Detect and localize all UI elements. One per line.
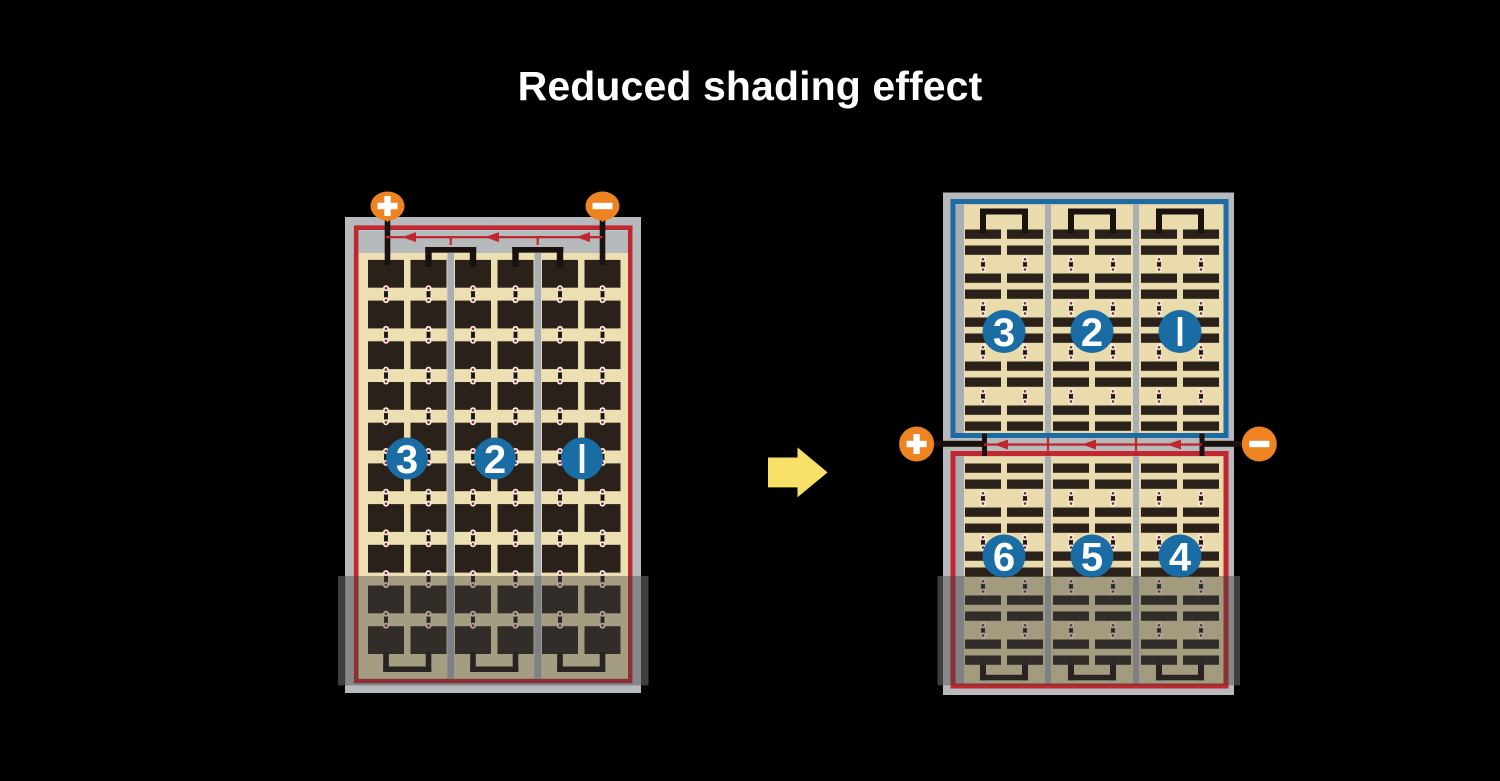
svg-text:2: 2 bbox=[484, 438, 506, 482]
svg-text:2: 2 bbox=[1081, 311, 1103, 355]
svg-text:6: 6 bbox=[993, 535, 1015, 579]
svg-text:4: 4 bbox=[1169, 535, 1192, 579]
svg-text:3: 3 bbox=[396, 438, 418, 482]
svg-text:3: 3 bbox=[993, 311, 1015, 355]
svg-text:5: 5 bbox=[1081, 535, 1103, 579]
